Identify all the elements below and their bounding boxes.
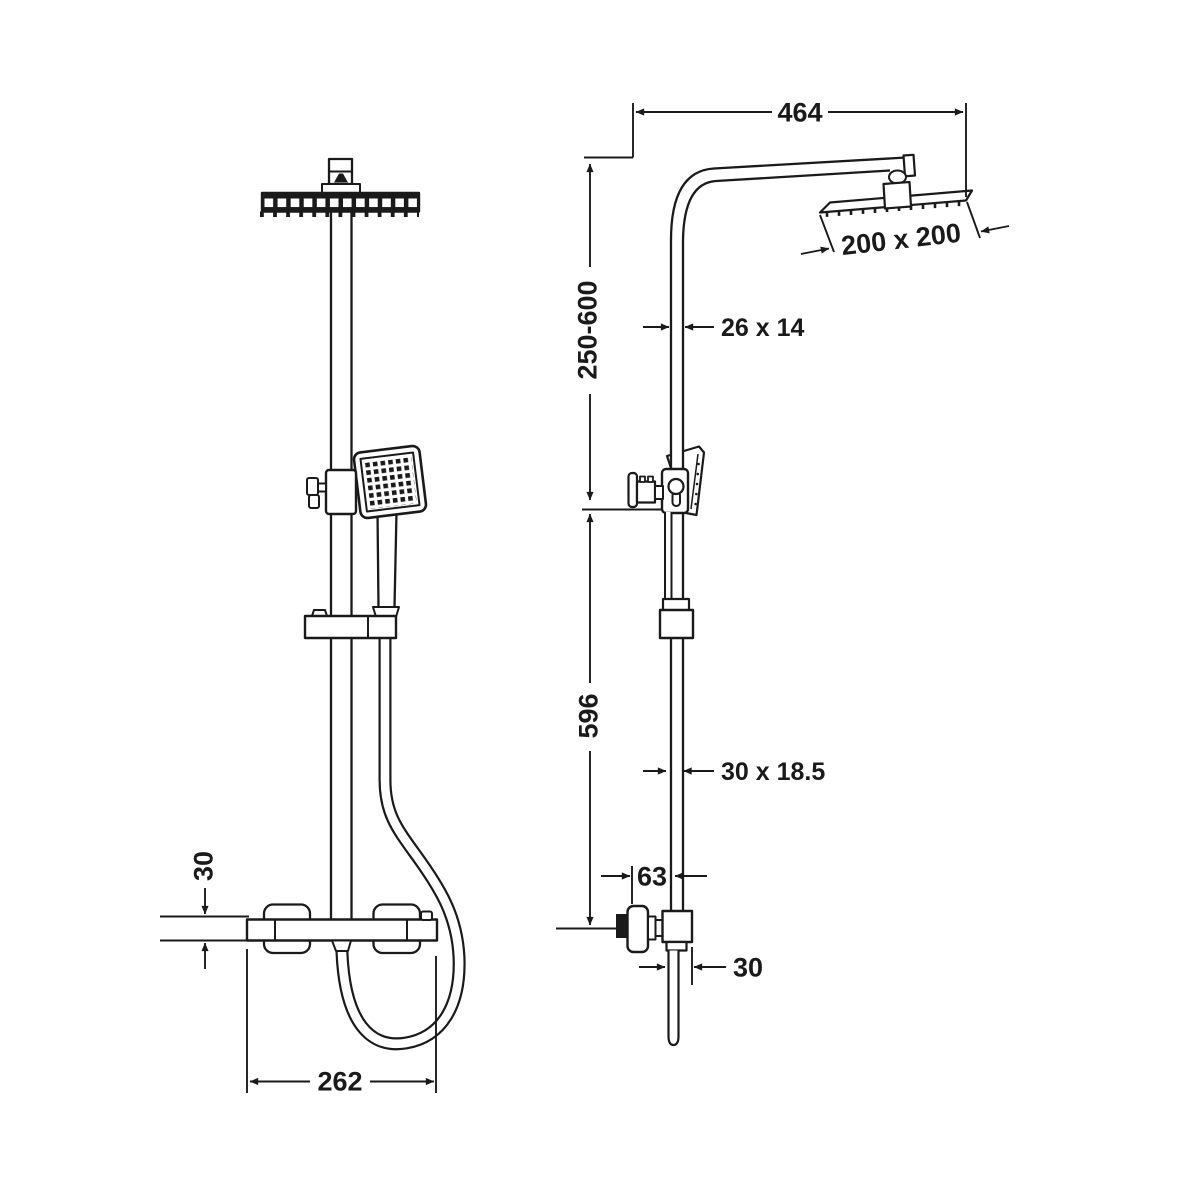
- hose-tail-side: [669, 951, 679, 1046]
- hose-outlet-connector: [332, 941, 351, 952]
- valve-handle-side: [628, 906, 649, 952]
- front-view: 30 262: [160, 159, 459, 1096]
- dim-arm-width-label: 464: [777, 97, 822, 127]
- dim-rail-section-label: 30 x 18.5: [721, 758, 825, 786]
- holder-side: [629, 469, 689, 513]
- handset-handle: [373, 512, 399, 617]
- shower-column-drawing: 30 262: [0, 0, 1200, 1200]
- dim-valve-width-label: 262: [317, 1066, 362, 1096]
- holder-knob: [307, 478, 318, 495]
- spray-face-dots: [365, 457, 417, 509]
- dim-outlet-depth-label: 30: [733, 952, 763, 982]
- holder-knob-side: [629, 473, 638, 507]
- overhead-head-front: [260, 159, 419, 217]
- riser-pipe: [331, 210, 352, 920]
- dim-upper-tube-label: 26 x 14: [721, 314, 805, 342]
- dim-valve-height-label: 30: [188, 851, 218, 881]
- spray-nozzles: [260, 212, 419, 218]
- dim-head-plate-label: 200 x 200: [840, 218, 963, 261]
- slider-block-side: [660, 610, 693, 638]
- handset-holder: [307, 470, 356, 514]
- outlet-elbow: [663, 911, 693, 942]
- dim-rail-length-label: 596: [573, 693, 603, 738]
- riser-rail-side: [671, 158, 908, 914]
- dim-holder-offset-label: 63: [637, 861, 667, 891]
- side-view: 464 200 x 200 26 x 14 250-600 596 30 x 1…: [556, 97, 1009, 1045]
- valve-button: [421, 912, 432, 921]
- valve-side: [616, 906, 692, 1045]
- dim-riser-range-label: 250-600: [572, 280, 602, 379]
- technical-drawing-page: 30 262: [0, 0, 1200, 1200]
- hand-shower-head: [353, 445, 427, 519]
